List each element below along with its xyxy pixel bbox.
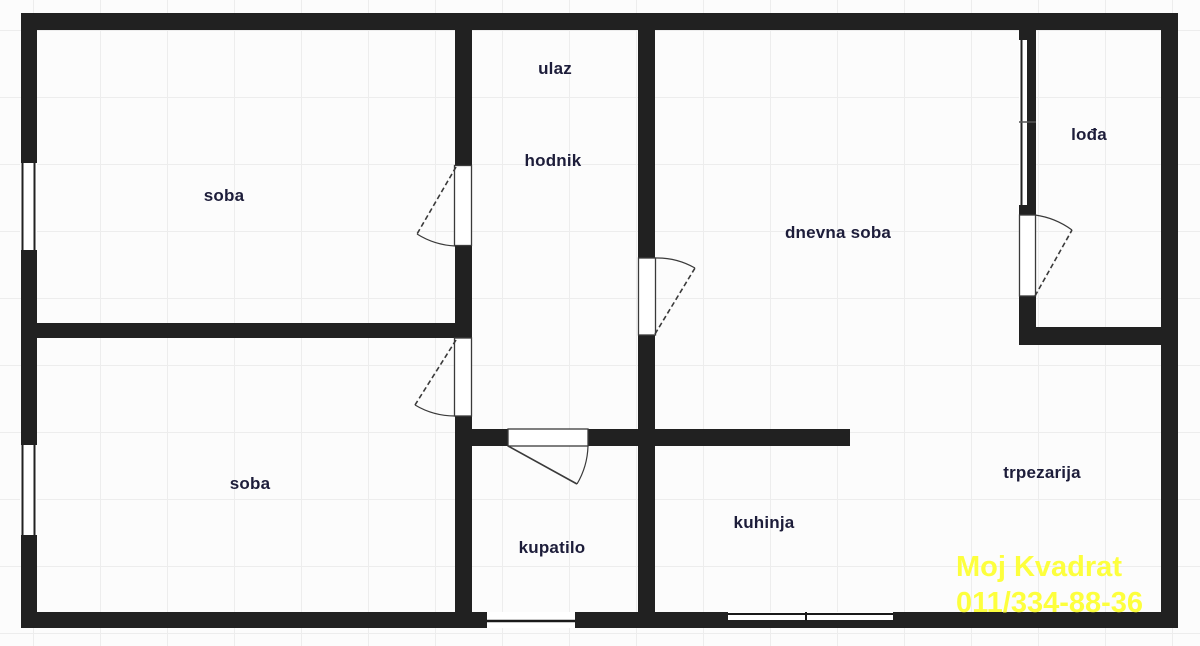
- window-bottom-kuhinja-icon: [728, 612, 893, 628]
- window-left-bottom-icon: [20, 445, 37, 535]
- room-label-dnevna-soba: dnevna soba: [785, 223, 891, 243]
- door-kupatilo-icon: [508, 429, 588, 484]
- window-bottom-kupatilo-icon: [487, 612, 575, 628]
- window-lodja-icon: [1019, 40, 1036, 205]
- wall-outer-right: [1161, 13, 1178, 628]
- wall-soba-divider: [21, 323, 472, 338]
- watermark: Moj Kvadrat 011/334-88-36: [956, 549, 1143, 621]
- wall-lodja-bottom: [1019, 327, 1178, 345]
- door-soba-top-icon: [417, 166, 472, 247]
- walls: [21, 13, 1178, 628]
- room-label-trpezarija: trpezarija: [1003, 463, 1081, 483]
- window-left-top-icon: [20, 163, 37, 250]
- room-label-ulaz: ulaz: [538, 59, 572, 79]
- door-dnevna-soba-icon: [639, 258, 696, 335]
- wall-outer-top: [21, 13, 1178, 30]
- door-lodja-icon: [1020, 215, 1073, 296]
- wall-outer-left: [21, 13, 37, 628]
- room-label-kupatilo: kupatilo: [519, 538, 586, 558]
- watermark-brand: Moj Kvadrat: [956, 549, 1143, 585]
- room-label-soba-top: soba: [204, 186, 244, 206]
- room-label-kuhinja: kuhinja: [734, 513, 795, 533]
- room-label-hodnik: hodnik: [525, 151, 582, 171]
- wall-hodnik-left: [455, 13, 472, 628]
- room-label-soba-bottom: soba: [230, 474, 270, 494]
- watermark-phone: 011/334-88-36: [956, 585, 1143, 621]
- floor-plan: soba ulaz hodnik dnevna soba lođa soba k…: [0, 0, 1200, 646]
- room-label-lodja: lođa: [1071, 125, 1107, 145]
- door-soba-bottom-icon: [415, 338, 472, 416]
